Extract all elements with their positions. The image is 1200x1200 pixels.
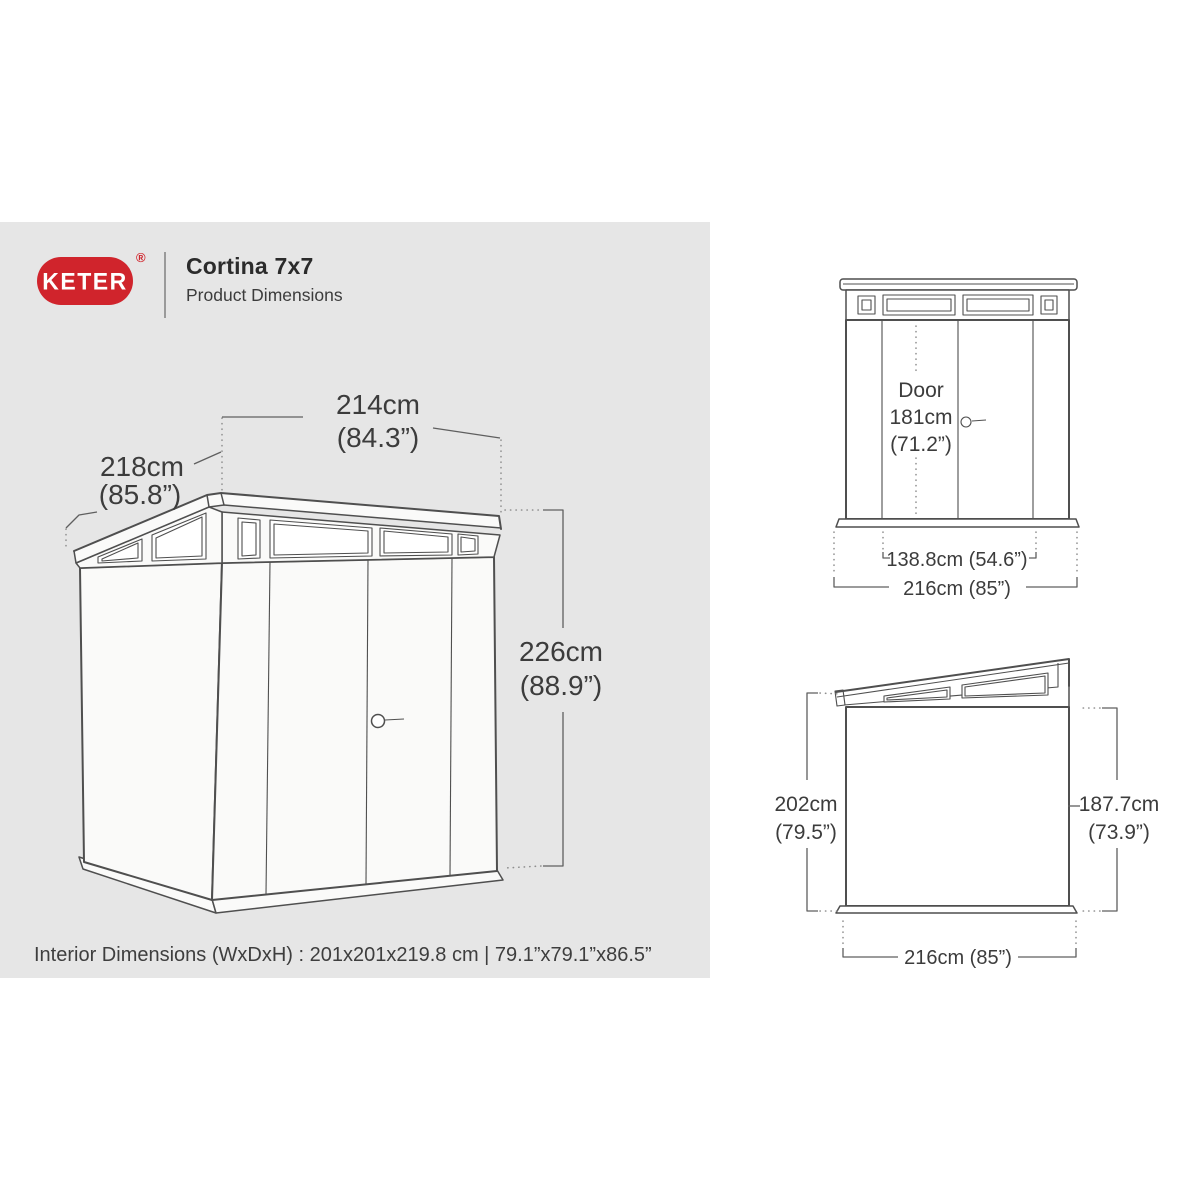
height-dimension-cm: 226cm [519, 636, 603, 667]
front-view-diagram: Door 181cm (71.2”) 138.8cm (54.6”) 216cm… [780, 262, 1180, 612]
door-height-in: (71.2”) [890, 433, 952, 456]
side-view-diagram: 202cm (79.5”) 187.7cm (73.9”) 216cm (85”… [765, 648, 1185, 980]
depth-dimension-cm: 218cm [100, 451, 184, 482]
iso-shed-drawing [74, 493, 503, 913]
front-base [836, 519, 1079, 527]
left-panel: KETER ® Cortina 7x7 Product Dimensions [0, 222, 710, 978]
front-clerestory-band [846, 290, 1069, 320]
width-dimension-in: (84.3”) [337, 422, 419, 453]
side-low-height-in: (73.9”) [1088, 821, 1150, 844]
side-view-drawing [835, 659, 1077, 913]
iso-wall-side [80, 563, 222, 900]
door-height-cm: 181cm [889, 406, 952, 429]
side-high-height-cm: 202cm [774, 793, 837, 816]
side-low-height-cm: 187.7cm [1079, 793, 1160, 816]
isometric-shed-diagram: 214cm (84.3”) 218cm (85.8”) 226cm (88.9”… [0, 222, 710, 978]
iso-door-handle-icon [372, 715, 385, 728]
page: KETER ® Cortina 7x7 Product Dimensions [0, 0, 1200, 1200]
door-label: Door [898, 379, 944, 402]
door-width-dimension: 138.8cm (54.6”) [886, 549, 1027, 571]
depth-dimension-in: (85.8”) [99, 479, 181, 510]
iso-wall-front [212, 557, 497, 900]
side-width-dimension: 216cm (85”) [904, 947, 1012, 969]
side-wall [846, 707, 1069, 906]
width-dimension-cm: 214cm [336, 389, 420, 420]
front-total-width-dimension: 216cm (85”) [903, 578, 1011, 600]
interior-dimensions-note: Interior Dimensions (WxDxH) : 201x201x21… [34, 944, 652, 967]
side-base [836, 906, 1077, 913]
height-dimension-in: (88.9”) [520, 670, 602, 701]
side-high-height-in: (79.5”) [775, 821, 837, 844]
front-view-drawing [836, 279, 1079, 527]
front-door-handle-icon [961, 417, 971, 427]
